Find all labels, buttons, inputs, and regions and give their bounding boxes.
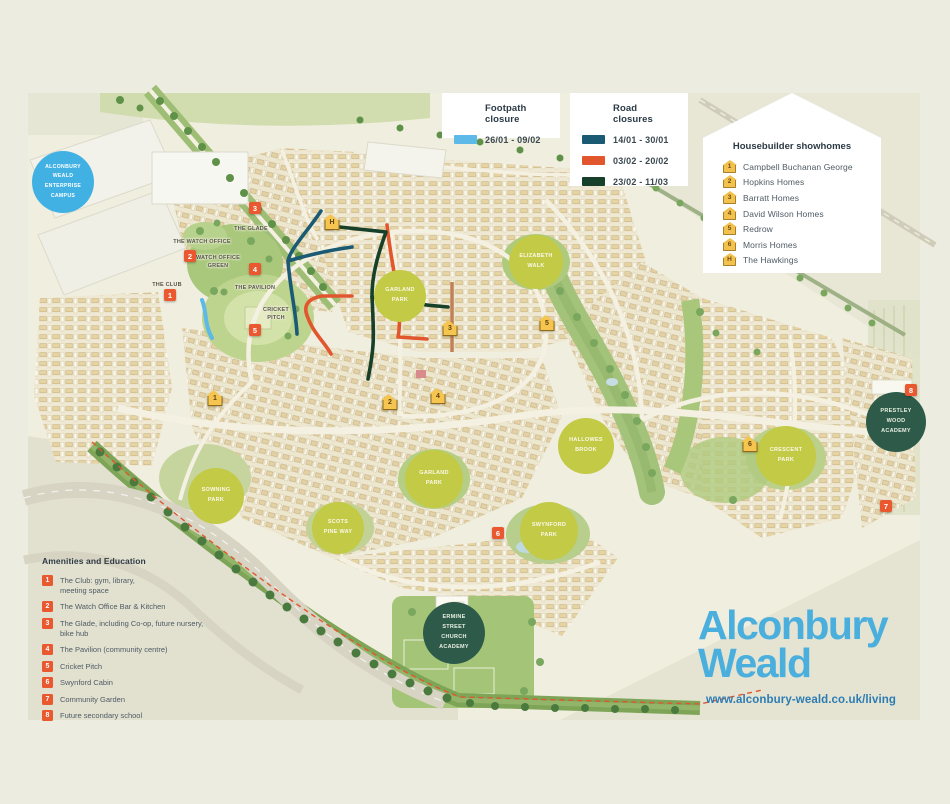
map-amenity-marker-8: 8 bbox=[905, 384, 917, 396]
amenity-name: The Watch Office Bar & Kitchen bbox=[60, 601, 165, 612]
showhome-name: Hopkins Homes bbox=[743, 177, 804, 187]
map-showhome-marker-5: 5 bbox=[540, 321, 555, 331]
house-icon: 1 bbox=[723, 165, 736, 173]
alconbury-weald-map-poster: Footpath closure 26/01 - 09/02 Road clos… bbox=[0, 0, 950, 804]
house-icon: 2 bbox=[723, 180, 736, 188]
amenity-name: The Pavilion (community centre) bbox=[60, 644, 168, 655]
amenity-name: Cricket Pitch bbox=[60, 661, 102, 672]
amenity-name: Swynford Cabin bbox=[60, 677, 113, 688]
map-amenity-marker-7: 7 bbox=[880, 500, 892, 512]
crescent-park-label: CRESCENT PARK bbox=[756, 426, 816, 486]
brand-line-2: Weald bbox=[698, 644, 887, 682]
prestley-wood-academy-label: PRESTLEY WOOD ACADEMY bbox=[866, 392, 926, 452]
hallowes-brook-label: HALLOWES BROOK bbox=[558, 418, 614, 474]
map-amenity-marker-5: 5 bbox=[249, 324, 261, 336]
elizabeth-walk-label: ELIZABETH WALK bbox=[509, 235, 563, 289]
showhome-item: 4 David Wilson Homes bbox=[723, 206, 871, 222]
road-closures-legend: Road closures 14/01 - 30/01 03/02 - 20/0… bbox=[570, 93, 688, 186]
amenity-marker-icon: 4 bbox=[42, 644, 53, 655]
footpath-legend-title: Footpath closure bbox=[485, 103, 550, 125]
showhome-marker-number: H bbox=[326, 215, 339, 229]
amenity-item: 1 The Club: gym, library, meeting space bbox=[42, 575, 252, 596]
amenity-name: Community Garden bbox=[60, 694, 125, 705]
road-closure-dates-3: 23/02 - 11/03 bbox=[613, 177, 668, 187]
amenity-marker-icon: 7 bbox=[42, 694, 53, 705]
amenity-item: 2 The Watch Office Bar & Kitchen bbox=[42, 601, 252, 612]
road-closure-dates-2: 03/02 - 20/02 bbox=[613, 156, 669, 166]
watch-office-green-tag: WATCH OFFICE GREEN bbox=[196, 254, 240, 271]
showhome-marker-number: 1 bbox=[209, 391, 222, 405]
watch-office-tag: THE WATCH OFFICE bbox=[173, 238, 231, 246]
road-closure-swatch-orange bbox=[582, 156, 605, 165]
showhome-marker-number: 2 bbox=[384, 395, 397, 409]
showhome-marker-number: 3 bbox=[444, 321, 457, 335]
amenity-item: 6 Swynford Cabin bbox=[42, 677, 252, 688]
footpath-closure-legend: Footpath closure 26/01 - 09/02 bbox=[442, 93, 560, 138]
showhome-item: 2 Hopkins Homes bbox=[723, 175, 871, 191]
showhome-name: David Wilson Homes bbox=[743, 209, 824, 219]
amenity-marker-icon: 3 bbox=[42, 618, 53, 629]
showhome-item: 5 Redrow bbox=[723, 221, 871, 237]
showhome-item: 1 Campbell Buchanan George bbox=[723, 159, 871, 175]
road-legend-title: Road closures bbox=[613, 103, 678, 125]
garland-park-upper-label: GARLAND PARK bbox=[374, 270, 426, 322]
cricket-pitch-tag: CRICKET PITCH bbox=[263, 306, 289, 323]
ermine-street-church-academy-label: ERMINE STREET CHURCH ACADEMY bbox=[423, 602, 485, 664]
showhome-name: Morris Homes bbox=[743, 240, 797, 250]
road-legend-row: 23/02 - 11/03 bbox=[582, 171, 678, 192]
showhome-marker-number: 6 bbox=[744, 437, 757, 451]
showhome-number: 1 bbox=[724, 161, 735, 172]
amenity-item: 3 The Glade, including Co-op, future nur… bbox=[42, 618, 252, 639]
map-showhome-marker-6: 6 bbox=[743, 442, 758, 452]
showhome-number: 4 bbox=[724, 208, 735, 219]
showhome-marker-number: 4 bbox=[432, 389, 445, 403]
swynford-park-label: SWYNFORD PARK bbox=[520, 502, 578, 560]
amenity-name: The Glade, including Co-op, future nurse… bbox=[60, 618, 203, 639]
amenities-legend: Amenities and Education 1 The Club: gym,… bbox=[42, 556, 252, 727]
showhome-marker-number: 5 bbox=[541, 316, 554, 330]
amenity-name: Future secondary school bbox=[60, 710, 142, 721]
website-url: www.alconbury-weald.co.uk/living bbox=[706, 694, 896, 706]
map-amenity-marker-1: 1 bbox=[164, 289, 176, 301]
amenity-name: The Club: gym, library, meeting space bbox=[60, 575, 135, 596]
amenities-title: Amenities and Education bbox=[42, 556, 252, 566]
pavilion-tag: THE PAVILION bbox=[235, 284, 275, 292]
showhome-name: Campbell Buchanan George bbox=[743, 162, 853, 172]
amenity-item: 4 The Pavilion (community centre) bbox=[42, 644, 252, 655]
map-amenity-marker-6: 6 bbox=[492, 527, 504, 539]
road-closure-swatch-teal bbox=[582, 135, 605, 144]
map-amenity-marker-3: 3 bbox=[249, 202, 261, 214]
club-tag: THE CLUB bbox=[152, 281, 182, 289]
showhome-number: H bbox=[724, 254, 735, 265]
amenity-marker-icon: 5 bbox=[42, 661, 53, 672]
footpath-dates: 26/01 - 09/02 bbox=[485, 135, 541, 145]
road-legend-row: 03/02 - 20/02 bbox=[582, 150, 678, 171]
map-showhome-marker-3: 3 bbox=[443, 326, 458, 336]
map-showhome-marker-4: 4 bbox=[431, 394, 446, 404]
amenity-item: 5 Cricket Pitch bbox=[42, 661, 252, 672]
house-icon: H bbox=[723, 258, 736, 266]
footpath-legend-row: 26/01 - 09/02 bbox=[454, 129, 550, 150]
scots-pine-way-label: SCOTS PINE WAY bbox=[312, 502, 364, 554]
brand-logo: Alconbury Weald bbox=[698, 606, 887, 682]
road-closure-dates-1: 14/01 - 30/01 bbox=[613, 135, 669, 145]
showhome-number: 5 bbox=[724, 223, 735, 234]
brand-line-1: Alconbury bbox=[698, 606, 887, 644]
amenity-marker-icon: 8 bbox=[42, 710, 53, 721]
showhome-item: H The Hawkings bbox=[723, 253, 871, 269]
showhome-item: 6 Morris Homes bbox=[723, 237, 871, 253]
house-icon: 4 bbox=[723, 212, 736, 220]
footpath-swatch bbox=[454, 135, 477, 144]
house-icon: 5 bbox=[723, 227, 736, 235]
showhome-number: 2 bbox=[724, 176, 735, 187]
map-amenity-marker-4: 4 bbox=[249, 263, 261, 275]
sowning-park-label: SOWNING PARK bbox=[188, 468, 244, 524]
showhome-name: The Hawkings bbox=[743, 255, 798, 265]
road-legend-row: 14/01 - 30/01 bbox=[582, 129, 678, 150]
amenity-marker-icon: 1 bbox=[42, 575, 53, 586]
showhome-name: Redrow bbox=[743, 224, 773, 234]
map-showhome-marker-2: 2 bbox=[383, 400, 398, 410]
amenity-item: 7 Community Garden bbox=[42, 694, 252, 705]
enterprise-campus-label: ALCONBURY WEALD ENTERPRISE CAMPUS bbox=[32, 151, 94, 213]
map-amenity-marker-2: 2 bbox=[184, 250, 196, 262]
house-icon: 3 bbox=[723, 196, 736, 204]
showhome-item: 3 Barratt Homes bbox=[723, 190, 871, 206]
showhomes-title: Housebuilder showhomes bbox=[723, 141, 861, 152]
showhome-number: 3 bbox=[724, 192, 735, 203]
showhome-number: 6 bbox=[724, 239, 735, 250]
road-closure-swatch-green bbox=[582, 177, 605, 186]
amenity-marker-icon: 2 bbox=[42, 601, 53, 612]
amenity-marker-icon: 6 bbox=[42, 677, 53, 688]
map-showhome-marker-h: H bbox=[325, 220, 340, 230]
glade-tag: THE GLADE bbox=[234, 225, 268, 233]
house-icon: 6 bbox=[723, 243, 736, 251]
showhome-name: Barratt Homes bbox=[743, 193, 799, 203]
map-showhome-marker-1: 1 bbox=[208, 396, 223, 406]
amenity-item: 8 Future secondary school bbox=[42, 710, 252, 721]
garland-park-label: GARLAND PARK bbox=[405, 450, 463, 508]
